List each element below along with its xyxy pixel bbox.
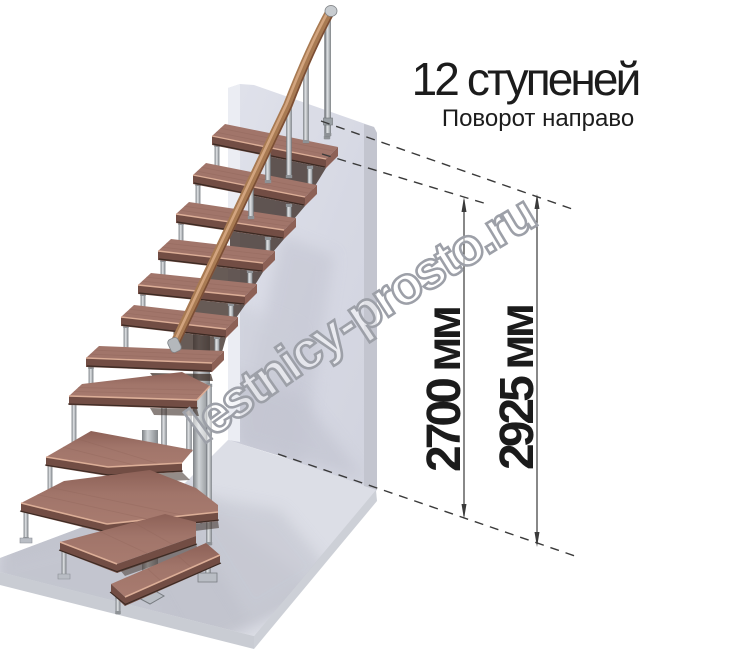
svg-text:12 ступеней: 12 ступеней [412,53,639,105]
svg-text:2925 мм: 2925 мм [491,305,544,470]
svg-text:2700 мм: 2700 мм [418,307,471,472]
svg-text:Поворот направо: Поворот направо [442,105,634,132]
